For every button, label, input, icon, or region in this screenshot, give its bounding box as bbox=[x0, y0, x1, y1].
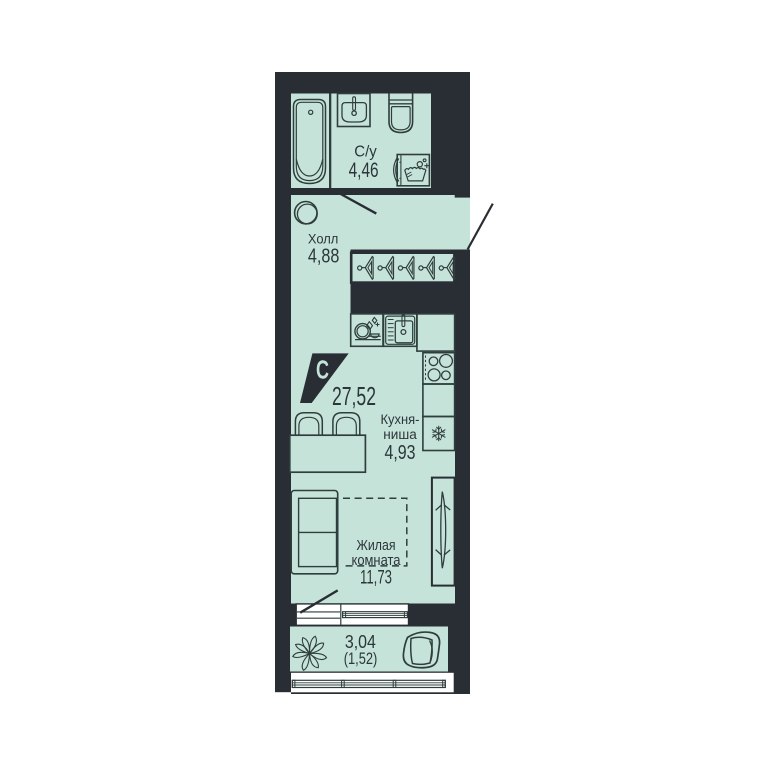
svg-text:комната: комната bbox=[352, 553, 402, 569]
svg-text:4,93: 4,93 bbox=[385, 441, 416, 464]
svg-text:Холл: Холл bbox=[308, 230, 339, 246]
svg-text:27,52: 27,52 bbox=[332, 381, 376, 411]
svg-text:11,73: 11,73 bbox=[360, 568, 392, 589]
svg-text:4,46: 4,46 bbox=[349, 159, 379, 182]
svg-text:ниша: ниша bbox=[383, 427, 417, 442]
svg-text:(1,52): (1,52) bbox=[344, 649, 378, 668]
svg-text:4,88: 4,88 bbox=[308, 246, 340, 268]
svg-text:С: С bbox=[316, 356, 329, 384]
svg-text:Жилая: Жилая bbox=[357, 538, 396, 554]
svg-text:Кухня-: Кухня- bbox=[381, 412, 420, 427]
